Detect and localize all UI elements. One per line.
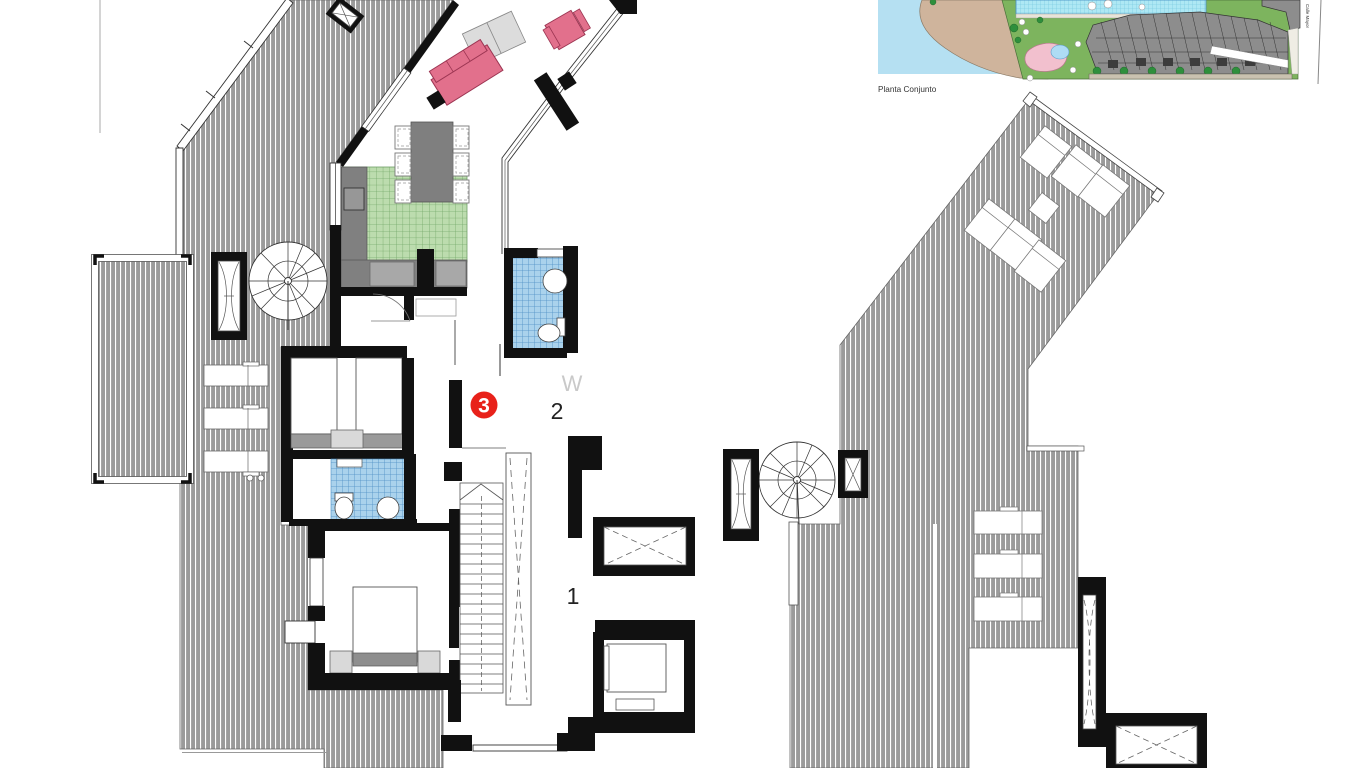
svg-text:3: 3 [478,395,490,418]
svg-text:W: W [562,371,583,396]
svg-text:2: 2 [551,398,564,424]
svg-text:Calle Mayor: Calle Mayor [1305,4,1310,29]
svg-text:1: 1 [567,583,580,609]
svg-text:Planta Conjunto: Planta Conjunto [878,85,937,94]
